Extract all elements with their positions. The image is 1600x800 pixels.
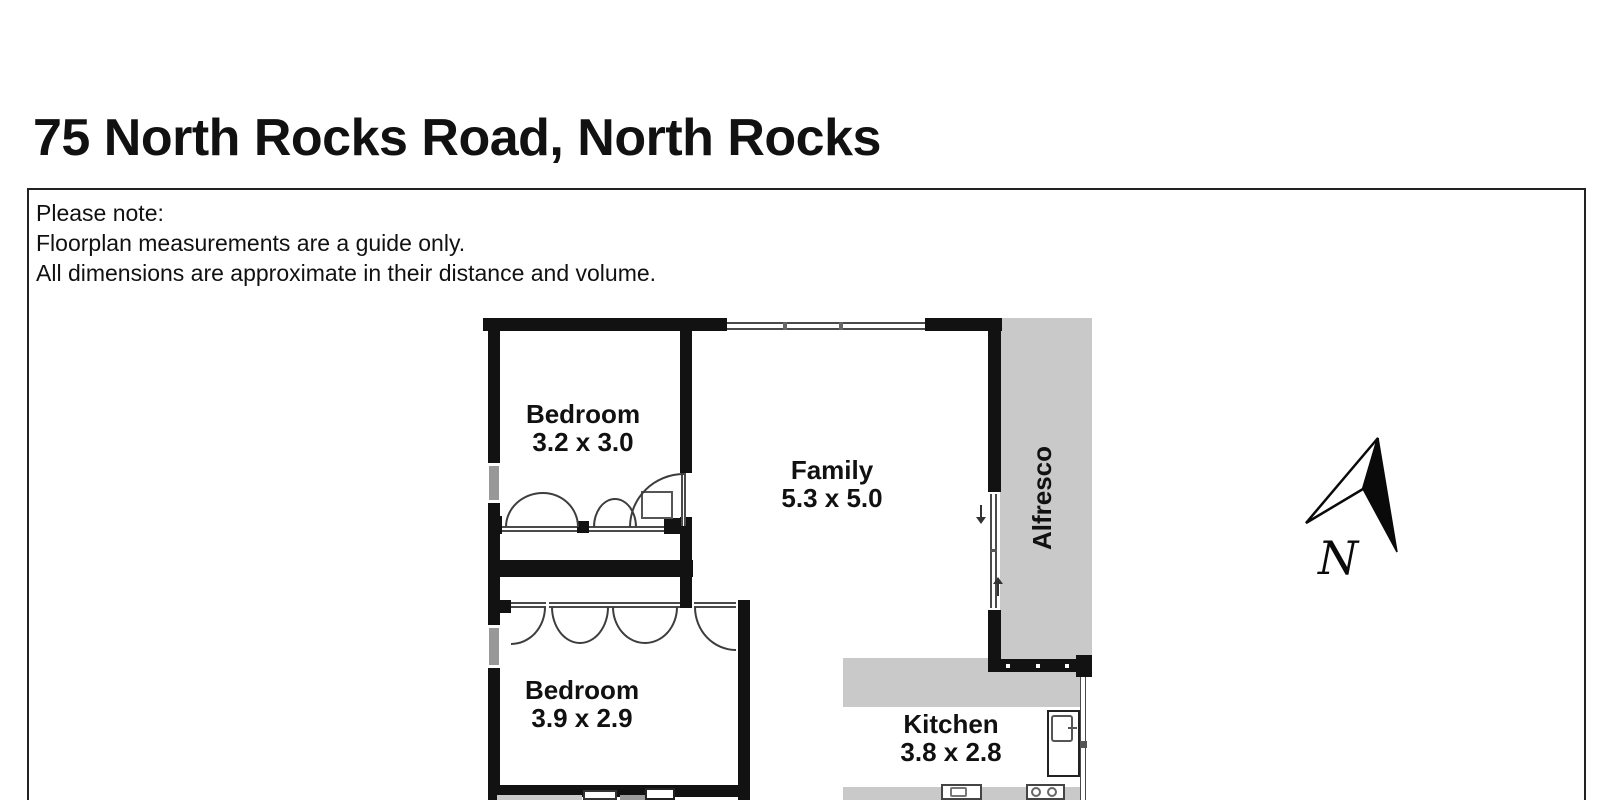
- room-dims: 3.8 x 2.8: [851, 738, 1051, 766]
- wall-bedroom2-door-post: [497, 600, 511, 613]
- window-cap: [489, 665, 499, 668]
- window-mullion: [783, 322, 787, 330]
- window-dot: [1036, 664, 1040, 668]
- window-dot: [1065, 664, 1069, 668]
- room-name: Family: [732, 456, 932, 484]
- page-title: 75 North Rocks Road, North Rocks: [33, 108, 881, 168]
- window-mullion: [839, 322, 843, 330]
- window-kitchen-right: [1080, 677, 1086, 800]
- burner-icon: [1031, 787, 1041, 797]
- wall-family-right-upper: [988, 318, 1001, 492]
- room-dims: 3.2 x 3.0: [483, 428, 683, 456]
- sliding-door-joint: [990, 549, 997, 552]
- arrow-line: [997, 584, 999, 596]
- window-bedroom1-left: [489, 463, 499, 503]
- room-name: Bedroom: [482, 676, 682, 704]
- window-cap: [489, 625, 499, 628]
- room-label-bedroom2: Bedroom 3.9 x 2.9: [482, 676, 682, 732]
- window-dot: [1006, 664, 1010, 668]
- wardrobe-post: [488, 516, 502, 534]
- room-label-family: Family 5.3 x 5.0: [732, 456, 932, 512]
- arrow-down-icon: [976, 517, 986, 524]
- burner-icon: [1047, 787, 1057, 797]
- disclaimer-line-1: Please note:: [36, 198, 164, 228]
- floorplan-page: 75 North Rocks Road, North Rocks Please …: [0, 0, 1600, 800]
- room-name: Bedroom: [483, 400, 683, 428]
- cutoff-fixture: [620, 795, 648, 800]
- window-cap: [489, 463, 499, 466]
- window-bedroom2-left: [489, 625, 499, 668]
- compass-north-label: N: [1317, 531, 1360, 585]
- arrow-line: [980, 505, 982, 517]
- disclaimer-line-2: Floorplan measurements are a guide only.: [36, 228, 465, 258]
- cutoff-fixture: [645, 788, 675, 800]
- room-dims: 5.3 x 5.0: [732, 484, 932, 512]
- room-name: Kitchen: [851, 710, 1051, 738]
- room-label-kitchen: Kitchen 3.8 x 2.8: [851, 710, 1051, 766]
- room-label-bedroom1: Bedroom 3.2 x 3.0: [483, 400, 683, 456]
- arrow-up-icon: [993, 577, 1003, 584]
- pantry-handle-icon: [1068, 727, 1077, 729]
- wall-alfresco-corner: [1076, 655, 1092, 677]
- room-label-alfresco: Alfresco: [1028, 438, 1052, 558]
- cutoff-fixture: [497, 795, 582, 800]
- room-dims: 3.9 x 2.9: [482, 704, 682, 732]
- north-compass: N: [1270, 412, 1420, 592]
- sink-basin-icon: [950, 787, 967, 797]
- window-cap: [489, 500, 499, 503]
- disclaimer-line-3: All dimensions are approximate in their …: [36, 258, 656, 288]
- wall-bedroom2-right: [738, 600, 750, 800]
- wall-between-wardrobes: [488, 560, 693, 577]
- cutoff-fixture: [583, 790, 617, 800]
- window-top: [727, 322, 925, 330]
